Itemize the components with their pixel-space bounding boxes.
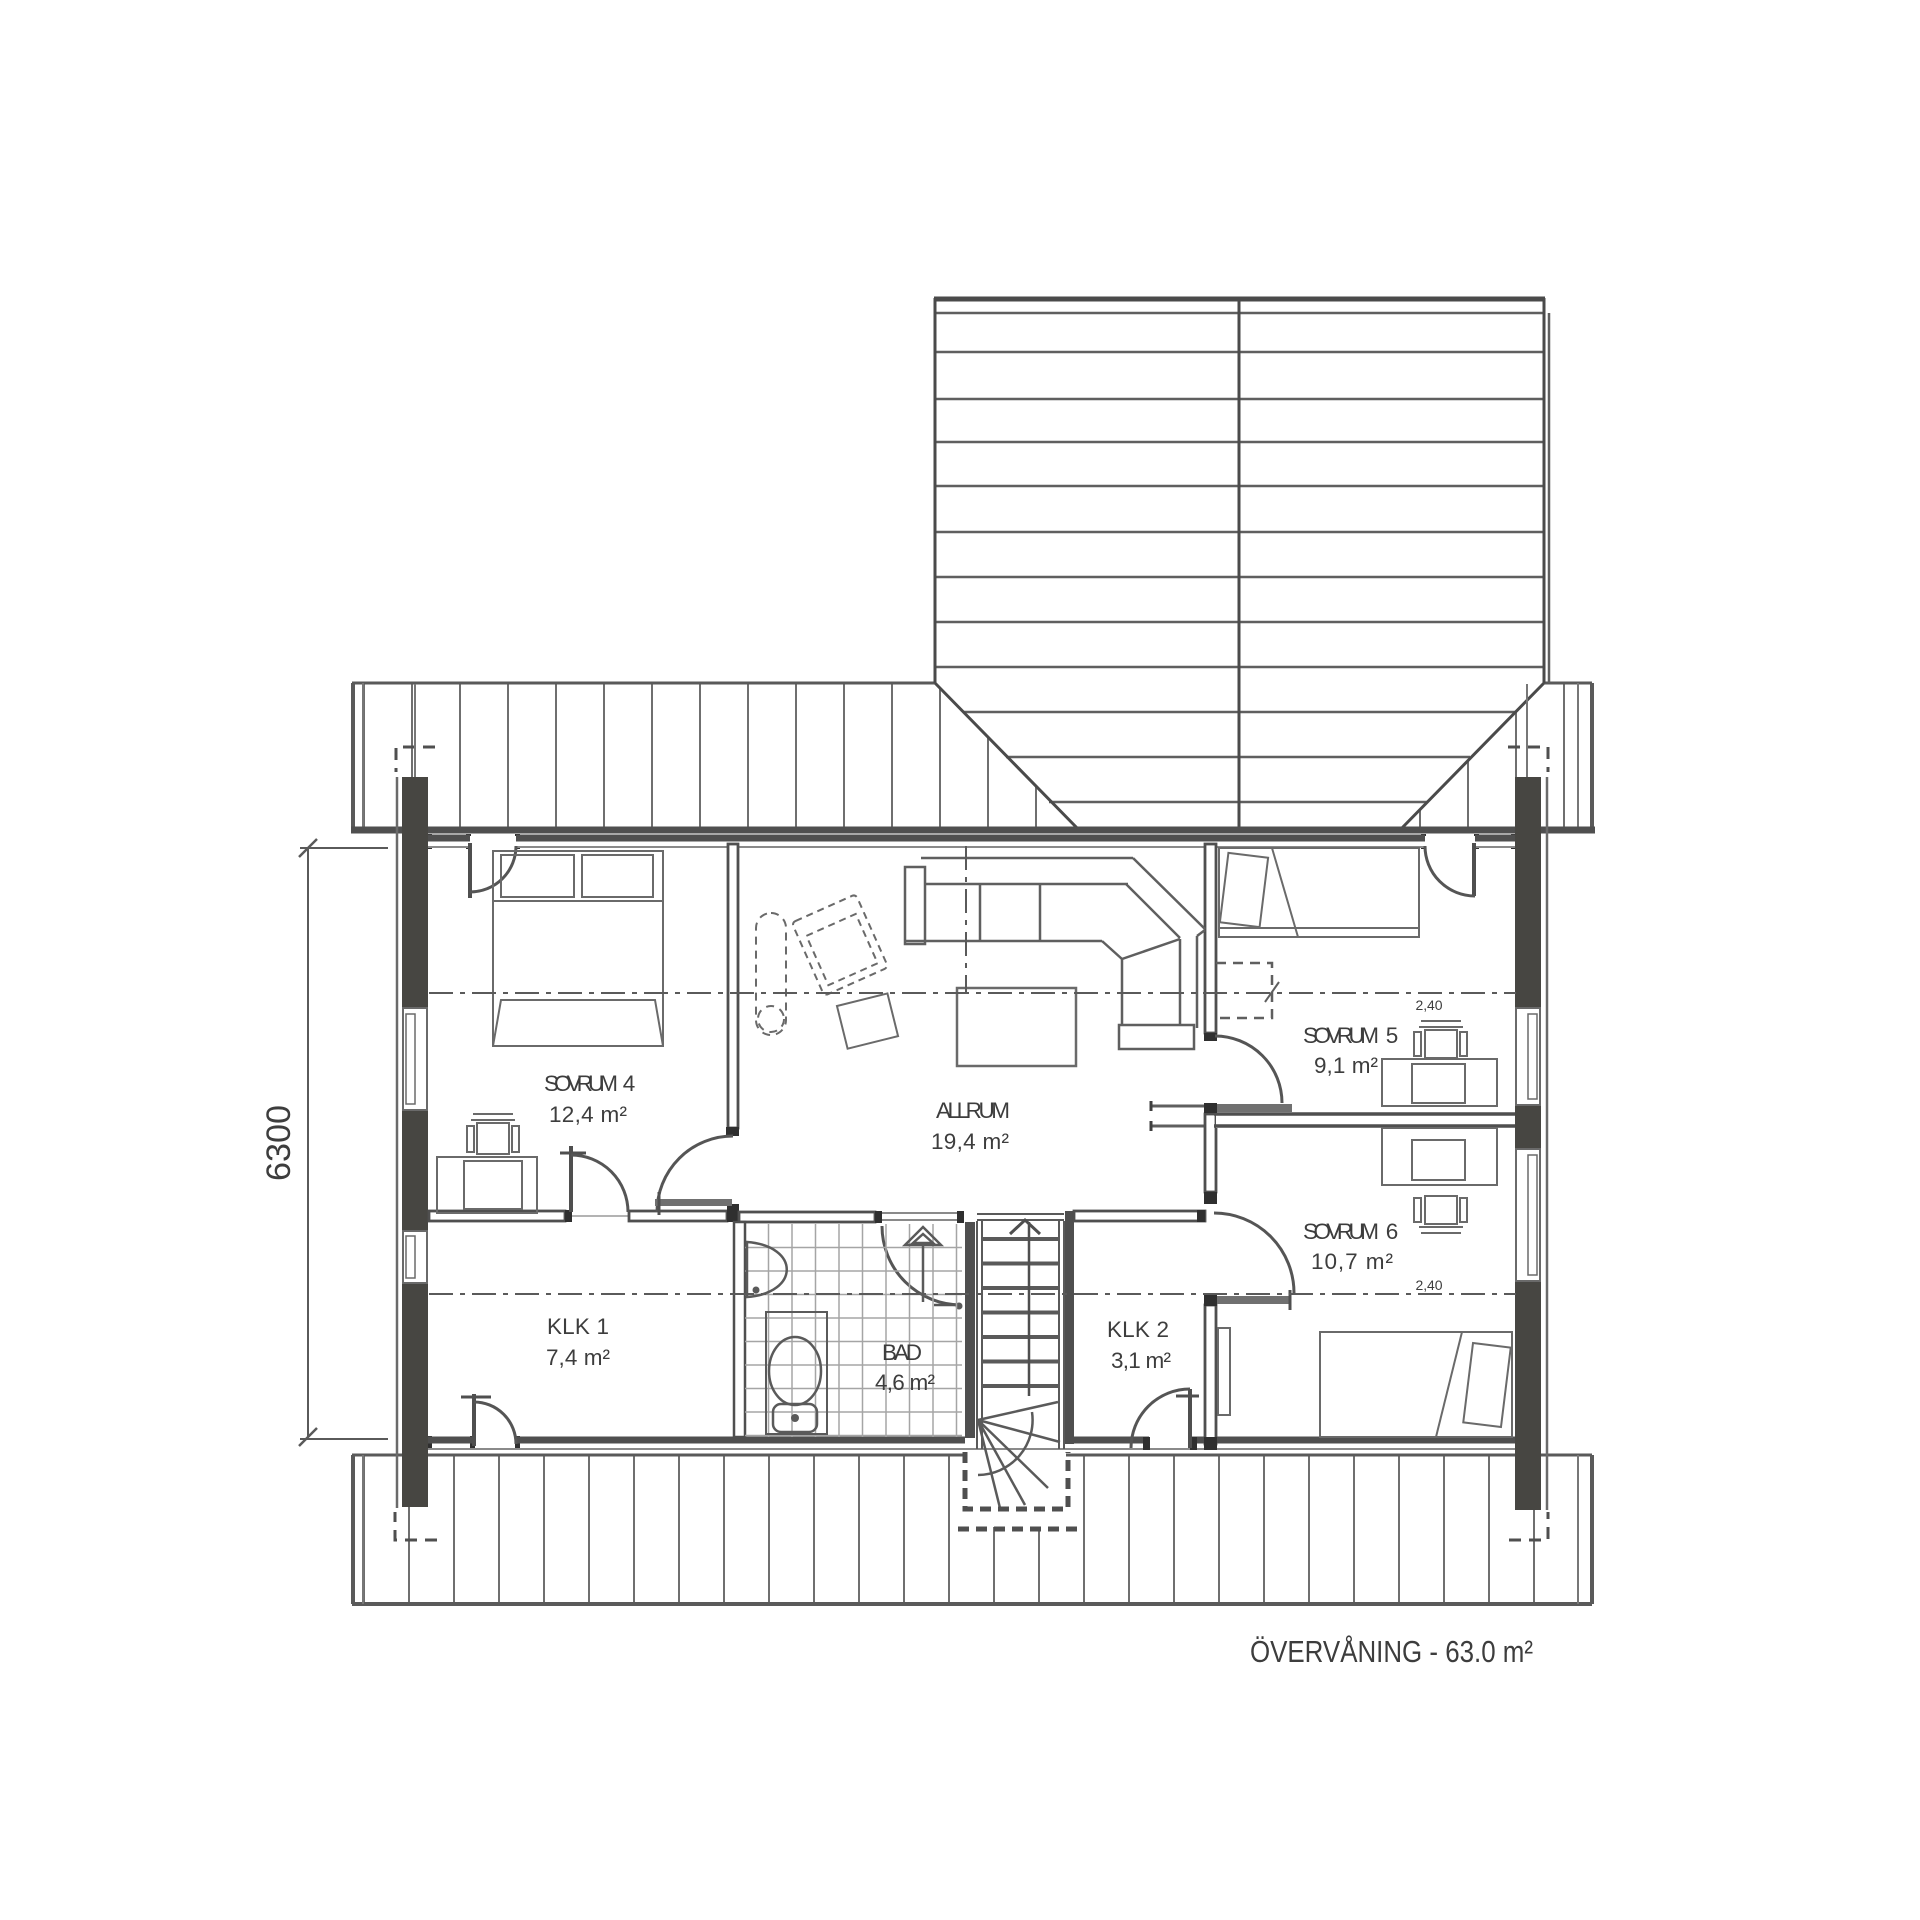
svg-text:KLK 2: KLK 2: [1107, 1317, 1169, 1342]
svg-text:SOVRUM: SOVRUM: [1303, 1219, 1379, 1244]
svg-text:3,1 m²: 3,1 m²: [1111, 1348, 1172, 1373]
svg-text:19,4 m²: 19,4 m²: [931, 1129, 1010, 1154]
svg-text:BAD: BAD: [882, 1340, 922, 1365]
svg-text:SOVRUM: SOVRUM: [544, 1071, 618, 1096]
svg-text:4: 4: [623, 1071, 636, 1096]
svg-text:KLK 1: KLK 1: [547, 1314, 609, 1339]
svg-text:10,7 m²: 10,7 m²: [1311, 1249, 1394, 1274]
svg-text:6: 6: [1386, 1219, 1399, 1244]
svg-text:12,4 m²: 12,4 m²: [549, 1102, 628, 1127]
svg-text:2,40: 2,40: [1416, 997, 1443, 1013]
svg-text:5: 5: [1386, 1023, 1399, 1048]
svg-text:6300: 6300: [260, 1105, 298, 1181]
svg-text:7,4 m²: 7,4 m²: [546, 1345, 611, 1370]
svg-text:SOVRUM: SOVRUM: [1303, 1023, 1379, 1048]
svg-text:ALLRUM: ALLRUM: [936, 1098, 1010, 1123]
svg-text:4,6 m²: 4,6 m²: [875, 1370, 936, 1395]
svg-text:9,1 m²: 9,1 m²: [1314, 1053, 1379, 1078]
svg-text:2,40: 2,40: [1416, 1277, 1443, 1293]
svg-text:ÖVERVÅNING - 63.0 m²: ÖVERVÅNING - 63.0 m²: [1250, 1634, 1533, 1669]
